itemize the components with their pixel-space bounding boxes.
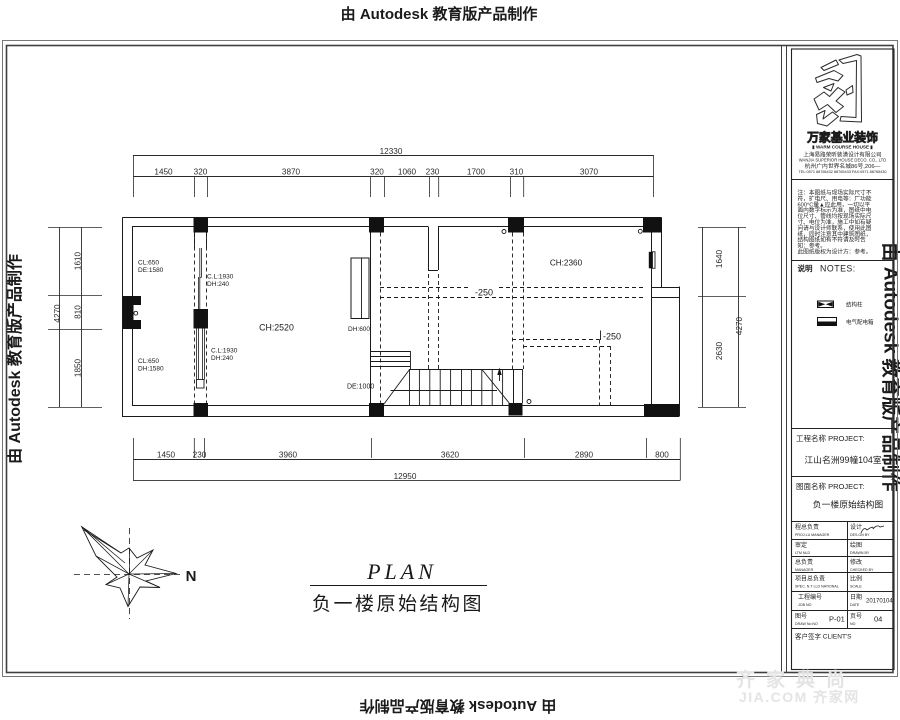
svg-text:C.L:1930: C.L:1930: [211, 348, 238, 355]
svg-text:说明: 说明: [798, 263, 813, 273]
svg-text:PROJ.LU MANAGER: PROJ.LU MANAGER: [795, 533, 830, 537]
svg-text:-250: -250: [475, 288, 493, 298]
svg-text:电气配电箱: 电气配电箱: [846, 318, 874, 326]
svg-text:1700: 1700: [467, 168, 486, 177]
svg-text:DRAWN BY: DRAWN BY: [850, 551, 870, 555]
svg-text:杭州广内世界名城86号,206—: 杭州广内世界名城86号,206—: [805, 162, 881, 170]
svg-text:12950: 12950: [394, 472, 417, 481]
svg-text:DH:240: DH:240: [211, 355, 233, 362]
svg-text:日期: 日期: [850, 593, 862, 601]
svg-text:负一楼原始结构图: 负一楼原始结构图: [312, 593, 484, 615]
svg-text:C.L:1930: C.L:1930: [207, 274, 234, 281]
svg-text:-250: -250: [603, 332, 621, 342]
svg-text:JOB NO: JOB NO: [798, 603, 812, 607]
svg-text:PLAN: PLAN: [366, 559, 437, 584]
svg-text:项目总负责: 项目总负责: [795, 575, 825, 583]
svg-text:3960: 3960: [279, 451, 298, 460]
svg-text:CL:650: CL:650: [138, 358, 159, 365]
svg-text:DE:1000: DE:1000: [347, 384, 374, 391]
svg-text:NO: NO: [850, 622, 856, 626]
svg-text:页号: 页号: [850, 613, 862, 620]
svg-text:320: 320: [194, 168, 208, 177]
svg-text:审定: 审定: [795, 541, 807, 549]
svg-text:TEL:0571 88765432 88765433 F: TEL:0571 88765432 88765433 FAX:0571 8876…: [798, 170, 886, 174]
svg-text:符，扩电尺、用电等：厂功能: 符，扩电尺、用电等：厂功能: [798, 194, 872, 202]
svg-text:310: 310: [510, 168, 524, 177]
svg-text:3620: 3620: [441, 451, 460, 460]
svg-text:比例: 比例: [850, 575, 862, 583]
svg-text:MANAGER: MANAGER: [795, 568, 814, 572]
svg-text:4270: 4270: [735, 316, 744, 335]
svg-text:20170104: 20170104: [866, 599, 893, 605]
svg-text:▮ WARM COURSE HOUSE ▮: ▮ WARM COURSE HOUSE ▮: [812, 145, 873, 150]
svg-text:万家基业装饰: 万家基业装饰: [806, 131, 878, 145]
svg-text:1450: 1450: [157, 451, 176, 460]
svg-text:结构图纸如有不符请及时告: 结构图纸如有不符请及时告: [798, 236, 867, 244]
svg-text:江山名洲99幢104室: 江山名洲99幢104室: [804, 454, 881, 465]
svg-text:总负责: 总负责: [795, 558, 813, 566]
svg-text:3070: 3070: [580, 168, 599, 177]
svg-text:810: 810: [74, 305, 83, 319]
svg-text:SCALE: SCALE: [850, 585, 862, 589]
svg-text:图号: 图号: [795, 613, 807, 620]
svg-text:DH:1580: DH:1580: [138, 366, 164, 373]
svg-text:纸，同时注意其中建筑图纸，: 纸，同时注意其中建筑图纸，: [798, 230, 872, 238]
svg-text:工程名称 PROJECT:: 工程名称 PROJECT:: [796, 433, 864, 443]
svg-text:CH:2360: CH:2360: [550, 259, 583, 268]
svg-text:3870: 3870: [282, 168, 301, 177]
svg-text:CL:650: CL:650: [138, 260, 159, 267]
svg-text:设计: 设计: [850, 523, 862, 531]
svg-text:DH:240: DH:240: [207, 281, 229, 288]
svg-text:注：本图纸与现场实际尺寸不: 注：本图纸与现场实际尺寸不: [798, 189, 872, 197]
svg-text:位尺寸、管线均按现场实际尺: 位尺寸、管线均按现场实际尺: [798, 212, 872, 220]
svg-text:DE:1580: DE:1580: [138, 267, 164, 274]
svg-text:800: 800: [655, 451, 669, 460]
svg-text:NOTES:: NOTES:: [820, 264, 856, 274]
svg-text:客户签字 CLIENT'S: 客户签字 CLIENT'S: [795, 632, 852, 641]
svg-text:WANJIA SUPERIOR HOUSE DECO. CO: WANJIA SUPERIOR HOUSE DECO. CO., LTD: [799, 158, 886, 163]
svg-text:1640: 1640: [715, 249, 724, 268]
svg-text:工程编号: 工程编号: [798, 593, 822, 601]
svg-text:600°C量▲应此用，一切以平: 600°C量▲应此用，一切以平: [798, 200, 871, 208]
svg-text:DRAW No NO: DRAW No NO: [795, 622, 818, 626]
svg-text:图面名称 PROJECT:: 图面名称 PROJECT:: [796, 481, 864, 491]
svg-text:1850: 1850: [74, 358, 83, 377]
svg-text:结构柱: 结构柱: [846, 301, 863, 309]
svg-text:12330: 12330: [380, 147, 403, 156]
svg-text:CHECKED BY: CHECKED BY: [850, 568, 874, 572]
svg-text:DATE: DATE: [850, 603, 860, 607]
svg-text:LTM NLD: LTM NLD: [795, 551, 811, 555]
svg-text:DH:600: DH:600: [348, 326, 370, 333]
svg-text:CH:2520: CH:2520: [259, 323, 294, 333]
svg-text:程总负责: 程总负责: [795, 523, 819, 531]
svg-text:230: 230: [193, 451, 207, 460]
svg-text:320: 320: [370, 168, 384, 177]
svg-text:SPEC. N.T LLD NATIONAL: SPEC. N.T LLD NATIONAL: [795, 585, 839, 589]
svg-text:1450: 1450: [154, 168, 173, 177]
svg-text:此图纸版权为设计方：参考。: 此图纸版权为设计方：参考。: [798, 248, 872, 256]
svg-text:寸、电位为准，施工中如有疑: 寸、电位为准，施工中如有疑: [798, 218, 872, 226]
svg-text:1060: 1060: [398, 168, 417, 177]
svg-text:面内数字标示为准，图纸中电: 面内数字标示为准，图纸中电: [798, 206, 872, 214]
svg-text:DES.GN BY: DES.GN BY: [850, 533, 870, 537]
svg-text:230: 230: [426, 168, 440, 177]
svg-text:问请与设计师联系，使用此图: 问请与设计师联系，使用此图: [798, 224, 872, 232]
svg-text:P-01: P-01: [829, 615, 845, 624]
svg-text:4270: 4270: [53, 304, 62, 323]
svg-text:04: 04: [874, 615, 882, 624]
svg-text:1610: 1610: [74, 251, 83, 270]
svg-text:N: N: [186, 568, 197, 585]
svg-text:修改: 修改: [850, 558, 862, 566]
svg-text:绘图: 绘图: [850, 541, 862, 549]
svg-text:2890: 2890: [575, 451, 594, 460]
svg-text:负一楼原始结构图: 负一楼原始结构图: [813, 499, 884, 510]
svg-text:知：参考。: 知：参考。: [798, 242, 826, 250]
svg-text:2630: 2630: [715, 341, 724, 360]
